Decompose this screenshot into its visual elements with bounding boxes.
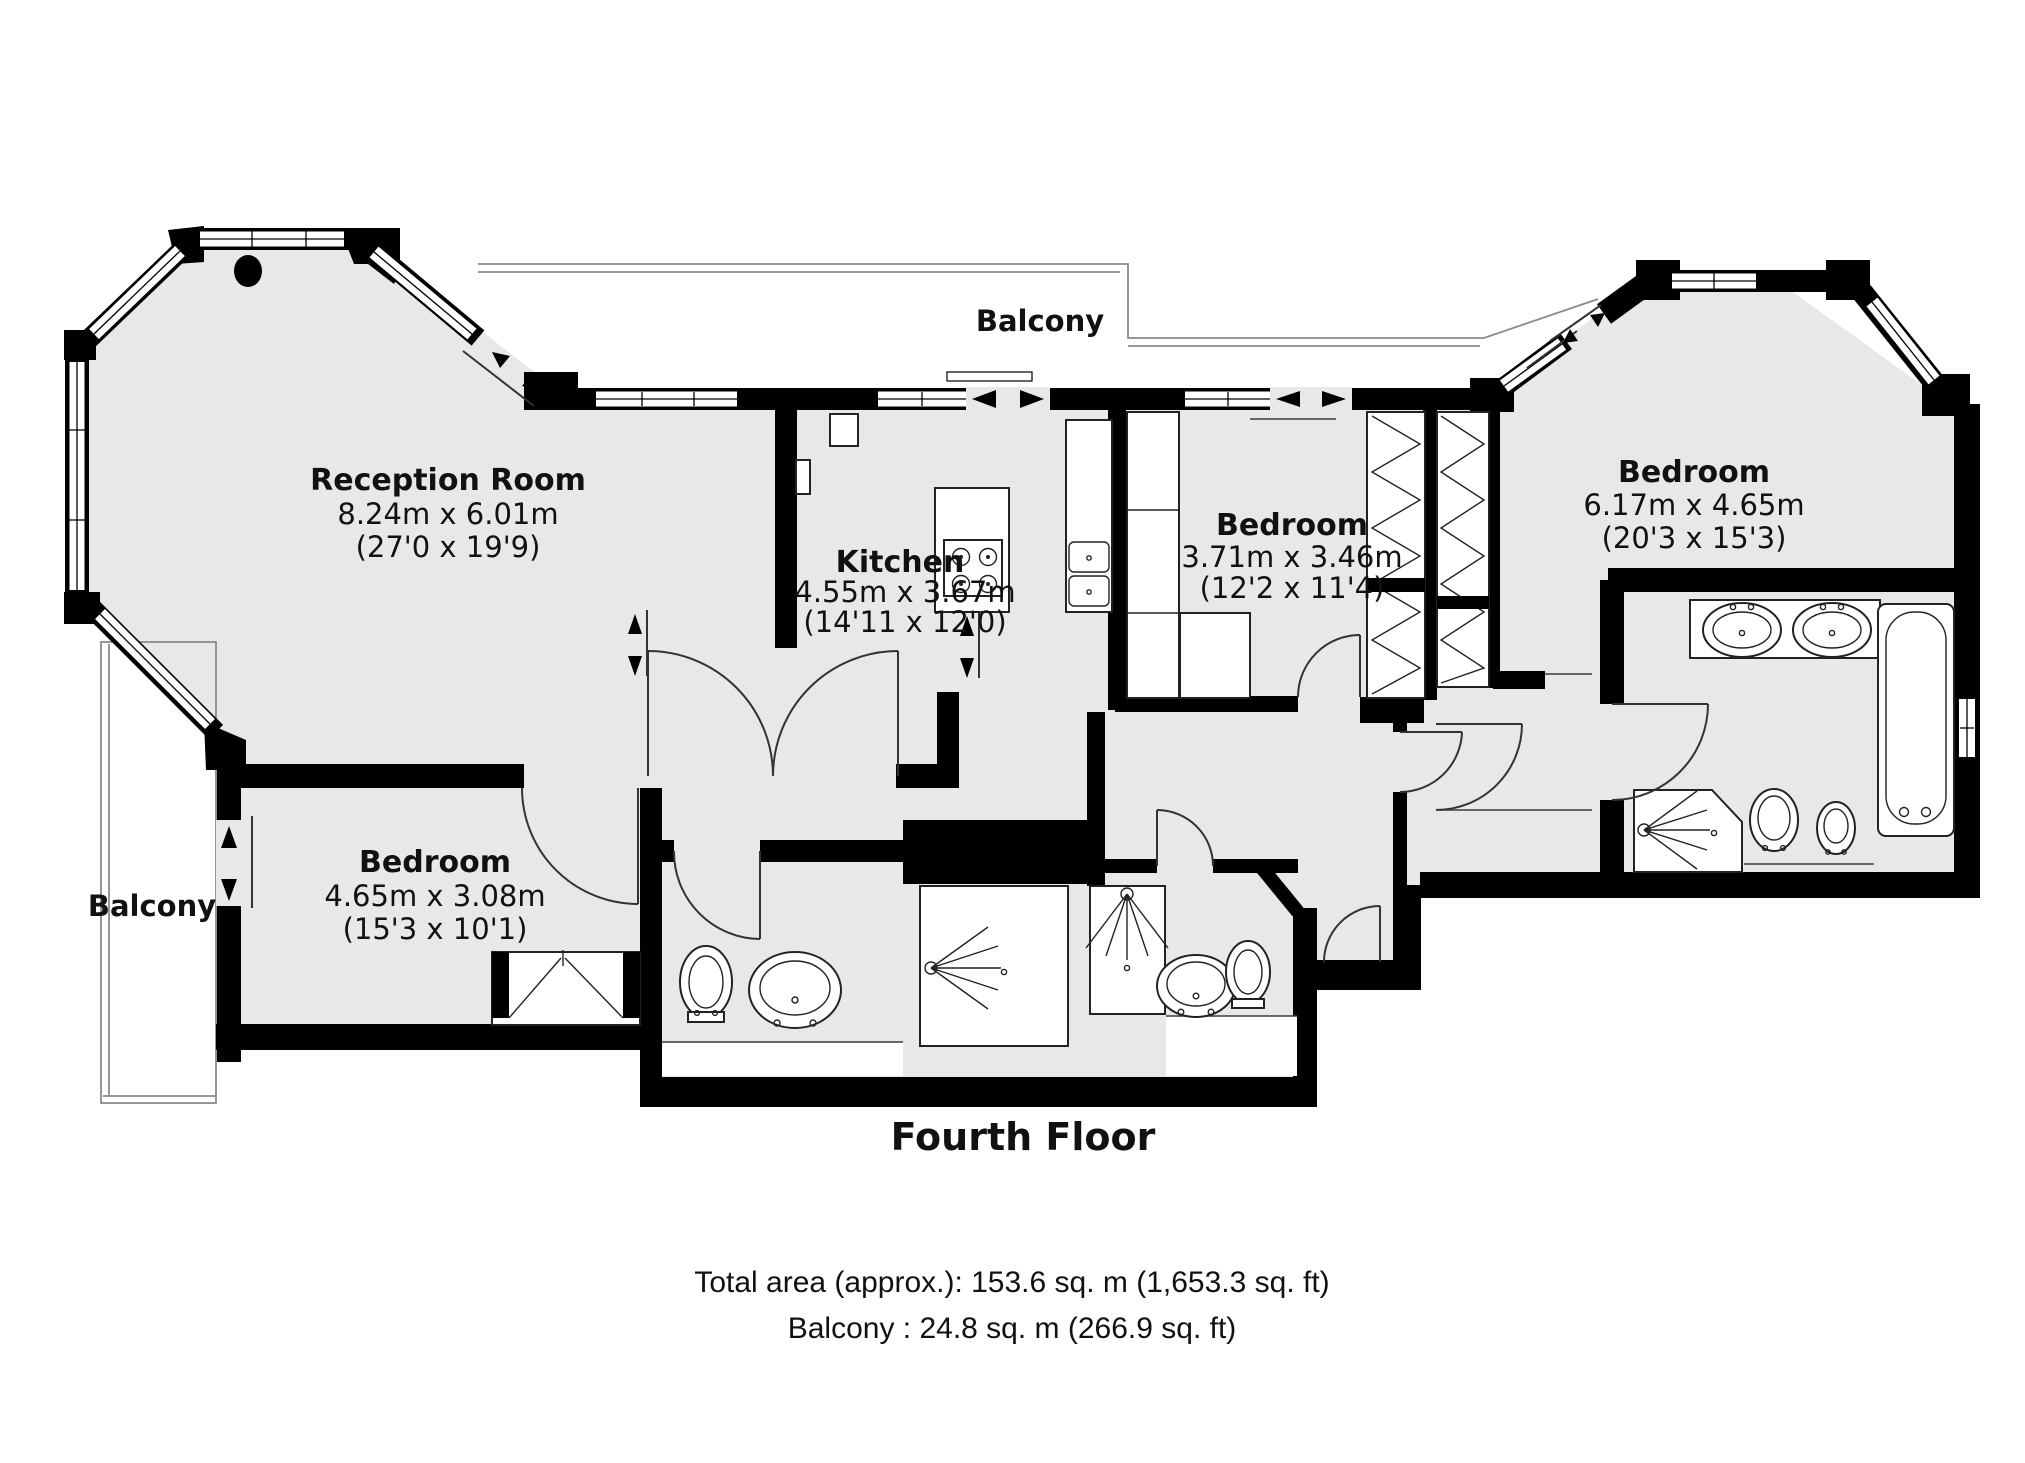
bedroom-left-dims-m: 4.65m x 3.08m bbox=[324, 879, 545, 913]
shower-room bbox=[920, 886, 1068, 1046]
sink-icon-2 bbox=[1157, 955, 1235, 1017]
reception-dims-ft: (27'0 x 19'9) bbox=[356, 530, 541, 564]
balcony-left-label: Balcony bbox=[88, 889, 216, 923]
floor-plan-canvas: Balcony Balcony Reception Room 8.24m x 6… bbox=[0, 0, 2025, 1463]
bedroom-left-dims-ft: (15'3 x 10'1) bbox=[343, 912, 528, 946]
reception-dims-m: 8.24m x 6.01m bbox=[337, 497, 558, 531]
balcony-area-text: Balcony : 24.8 sq. m (266.9 sq. ft) bbox=[788, 1312, 1237, 1345]
column bbox=[234, 255, 262, 287]
toilet-icon-3 bbox=[1750, 789, 1798, 851]
kitchen-dims-ft: (14'11 x 12'0) bbox=[803, 605, 1006, 639]
bedroom-middle-dims-m: 3.71m x 3.46m bbox=[1181, 540, 1402, 574]
sink-icon bbox=[749, 952, 841, 1028]
bedroom-middle-dims-ft: (12'2 x 11'4) bbox=[1200, 571, 1385, 605]
vanity-double-sink bbox=[1690, 600, 1880, 658]
balcony-top-label: Balcony bbox=[976, 304, 1104, 338]
bedroom-left-closet bbox=[492, 950, 640, 1025]
reception-name: Reception Room bbox=[310, 463, 586, 498]
floor-plan-page: Balcony Balcony Reception Room 8.24m x 6… bbox=[0, 0, 2025, 1463]
bathtub-icon bbox=[1878, 604, 1954, 836]
bedroom-left-name: Bedroom bbox=[359, 845, 511, 880]
bedroom-right-dims-m: 6.17m x 4.65m bbox=[1583, 488, 1804, 522]
bedroom-right-name: Bedroom bbox=[1618, 455, 1770, 490]
kitchen-dims-m: 4.55m x 3.67m bbox=[794, 575, 1015, 609]
bedroom-middle-name: Bedroom bbox=[1216, 508, 1368, 543]
plan-title: Fourth Floor bbox=[891, 1115, 1156, 1159]
bidet-icon bbox=[1817, 802, 1855, 854]
total-area-text: Total area (approx.): 153.6 sq. m (1,653… bbox=[694, 1266, 1329, 1299]
bedroom-right-dims-ft: (20'3 x 15'3) bbox=[1602, 521, 1787, 555]
wardrobe-right bbox=[1437, 412, 1489, 687]
